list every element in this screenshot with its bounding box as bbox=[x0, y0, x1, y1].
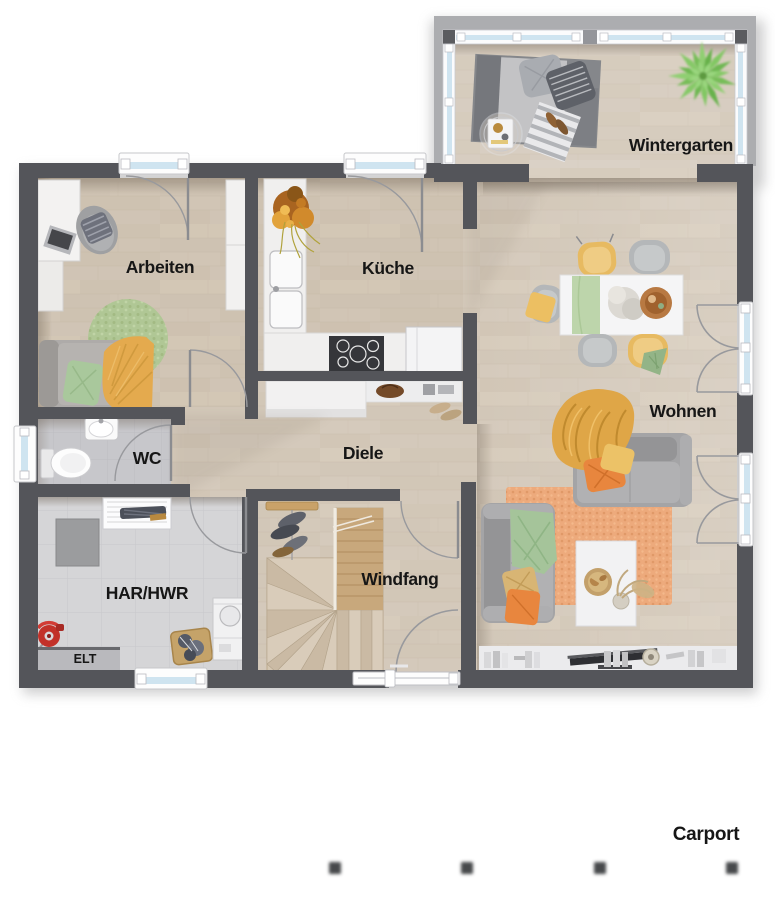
svg-text:Wintergarten: Wintergarten bbox=[629, 135, 733, 155]
svg-text:Wohnen: Wohnen bbox=[650, 401, 717, 421]
svg-text:Arbeiten: Arbeiten bbox=[126, 257, 195, 277]
svg-text:Diele: Diele bbox=[343, 443, 384, 463]
svg-text:WC: WC bbox=[133, 448, 162, 468]
svg-text:Windfang: Windfang bbox=[361, 569, 438, 589]
svg-text:ELT: ELT bbox=[74, 652, 97, 666]
svg-text:Carport: Carport bbox=[673, 824, 740, 845]
svg-text:Küche: Küche bbox=[362, 258, 415, 278]
svg-text:HAR/HWR: HAR/HWR bbox=[106, 583, 189, 603]
